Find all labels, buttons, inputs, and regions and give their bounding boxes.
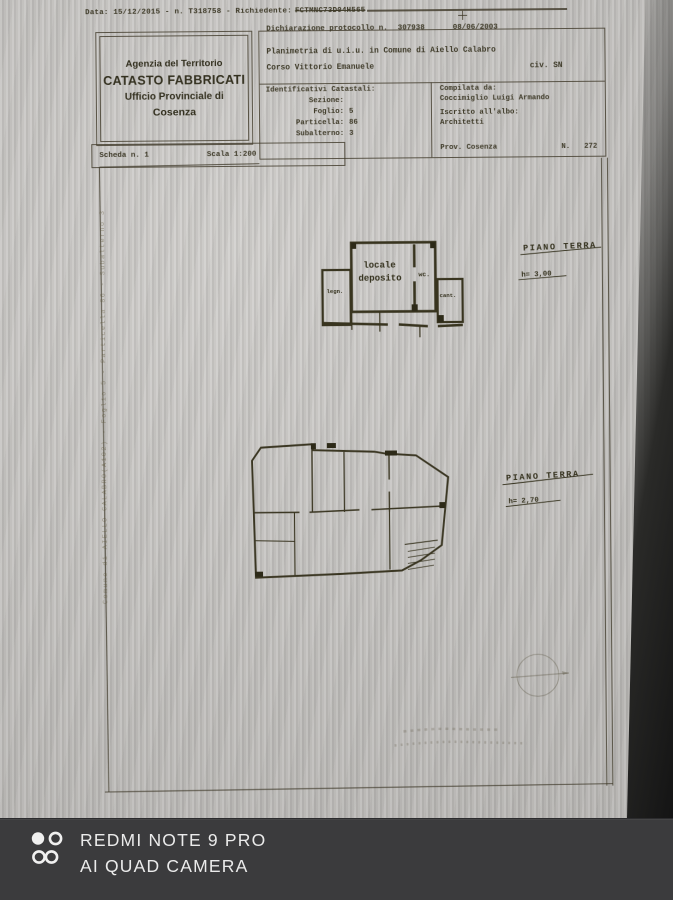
- agency-name: Agenzia del Territorio: [126, 58, 223, 70]
- ids-row-subalterno: Subalterno: 3: [266, 128, 427, 140]
- plan-top-caption: PIANO TERRA h= 3,00: [517, 240, 602, 280]
- address-row: Corso Vittorio Emanuele civ. SN: [267, 62, 563, 73]
- request-line-text: Data: 15/12/2015 - n. T318758 - Richiede…: [85, 7, 292, 17]
- planimetria-line: Planimetria di u.i.u. in Comune di Aiell…: [266, 47, 495, 57]
- compiler-box: Compilata da: Coccimiglio Luigi Armando …: [432, 81, 606, 158]
- header-data-box: Dichiarazione protocollo n. 307938 08/06…: [258, 28, 606, 160]
- registry-name: CATASTO FABBRICATI: [103, 73, 245, 88]
- room-label-cantina: cant.: [440, 292, 457, 299]
- address: Corso Vittorio Emanuele: [267, 64, 375, 73]
- camera-model: REDMI NOTE 9 PRO: [80, 827, 266, 853]
- protocol-label: Dichiarazione protocollo n.: [266, 25, 388, 34]
- register-number-label: N.: [561, 142, 570, 152]
- camera-mode: AI QUAD CAMERA: [80, 853, 266, 879]
- room-label-legnaia: legn.: [327, 288, 344, 295]
- quad-camera-icon: [30, 830, 68, 868]
- request-fiscal-code: FCTMNC73D04H565: [295, 7, 366, 16]
- protocol-date: 08/06/2003: [453, 24, 498, 32]
- cadastral-ids-box: Identificativi Catastali: Sezione: Fogli…: [260, 82, 433, 158]
- floor-plan-bottom: [252, 442, 449, 578]
- scale-value: Scala 1:200: [207, 151, 257, 159]
- plan-bottom-caption: PIANO TERRA h= 2,70: [502, 468, 595, 506]
- request-line: Data: 15/12/2015 - n. T318758 - Richiede…: [85, 5, 567, 17]
- side-watermark-text: Comune di AIELLO CALABRO(A102) - Foglio …: [99, 210, 110, 605]
- room-label-deposito: deposito: [358, 273, 401, 283]
- plan-bottom-height: h= 2,70: [508, 497, 539, 507]
- office-title-box: Agenzia del Territorio CATASTO FABBRICAT…: [95, 31, 253, 146]
- protocol-number: 307938: [398, 24, 425, 32]
- camera-watermark-text: REDMI NOTE 9 PRO AI QUAD CAMERA: [80, 827, 266, 879]
- corner-tick: [458, 11, 467, 20]
- plan-bottom-title: PIANO TERRA: [506, 469, 580, 483]
- rule-line: [367, 8, 567, 11]
- drawing-sheet: Comune di AIELLO CALABRO(A102) - Foglio …: [86, 158, 620, 813]
- protocol-row: Dichiarazione protocollo n. 307938 08/06…: [266, 24, 498, 34]
- plan-top-title: PIANO TERRA: [523, 240, 597, 253]
- photo-of-screen: Data: 15/12/2015 - n. T318758 - Richiede…: [0, 0, 673, 900]
- room-label-locale: locale: [363, 260, 395, 270]
- sheet-number: Scheda n. 1: [99, 152, 149, 160]
- cadastral-ids-title: Identificativi Catastali:: [266, 85, 427, 94]
- register-number: 272: [584, 142, 597, 152]
- compass-symbol: [511, 654, 569, 697]
- province: Prov. Cosenza: [440, 143, 497, 153]
- camera-watermark-bar: REDMI NOTE 9 PRO AI QUAD CAMERA: [0, 818, 673, 900]
- register-value: Architetti: [440, 117, 597, 128]
- office-line: Ufficio Provinciale di: [125, 91, 224, 103]
- room-label-wc: wc.: [418, 271, 430, 278]
- civic-number: civ. SN: [530, 62, 563, 70]
- faded-marks: [394, 728, 526, 745]
- cadastral-document: Data: 15/12/2015 - n. T318758 - Richiede…: [0, 0, 673, 821]
- office-city: Cosenza: [153, 106, 196, 118]
